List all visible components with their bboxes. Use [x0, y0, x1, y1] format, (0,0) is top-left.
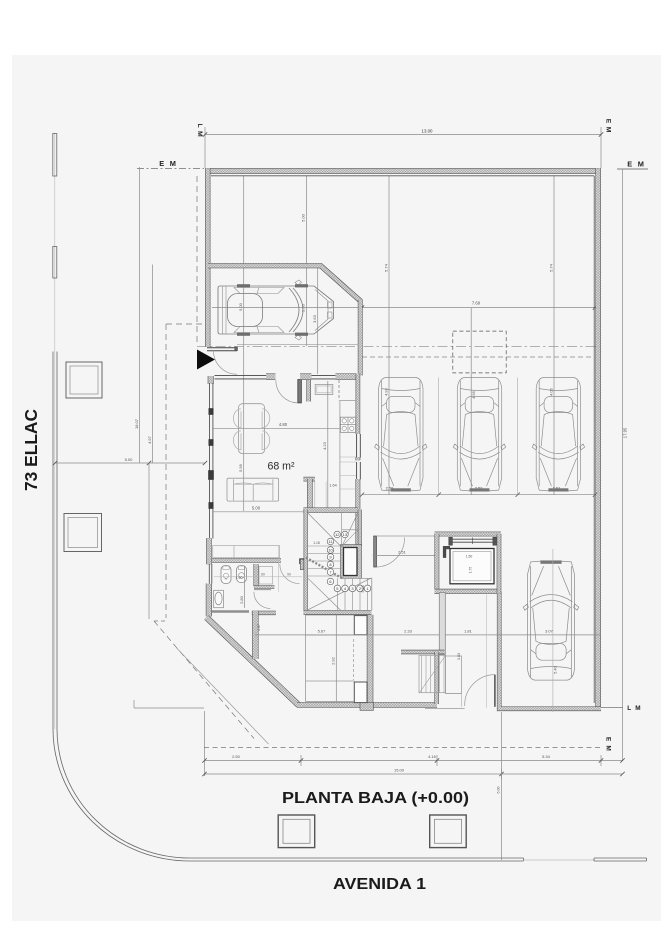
svg-text:E M: E M [605, 737, 612, 752]
svg-text:4.05: 4.05 [548, 387, 553, 396]
svg-text:60: 60 [261, 572, 265, 576]
svg-text:1.75: 1.75 [469, 567, 473, 573]
svg-text:2.51: 2.51 [398, 549, 407, 554]
svg-text:1.50: 1.50 [466, 555, 473, 559]
svg-text:17.95: 17.95 [623, 427, 628, 438]
svg-text:5.00: 5.00 [252, 506, 261, 511]
svg-text:3.63: 3.63 [312, 314, 317, 323]
svg-text:5.00: 5.00 [301, 213, 306, 222]
svg-text:4.97: 4.97 [147, 435, 152, 444]
svg-text:2.92: 2.92 [331, 656, 336, 665]
svg-text:L M: L M [196, 124, 203, 138]
svg-text:5.99: 5.99 [238, 463, 243, 472]
svg-text:5.83: 5.83 [361, 586, 365, 593]
svg-text:3.07: 3.07 [545, 629, 554, 634]
svg-text:2.33: 2.33 [404, 629, 413, 634]
svg-text:15.00: 15.00 [394, 768, 405, 773]
svg-text:13.00: 13.00 [422, 128, 434, 133]
svg-text:1.18: 1.18 [313, 541, 320, 545]
svg-text:2.80: 2.80 [239, 595, 244, 604]
svg-text:5.67: 5.67 [318, 629, 327, 634]
svg-text:E M: E M [627, 160, 646, 169]
svg-text:73 ELLAC: 73 ELLAC [21, 409, 41, 491]
svg-text:2.50: 2.50 [232, 754, 241, 759]
svg-text:1.07: 1.07 [257, 624, 261, 631]
svg-text:AVENIDA 1: AVENIDA 1 [333, 876, 426, 893]
svg-text:5.40: 5.40 [552, 665, 557, 674]
svg-text:1.60: 1.60 [236, 575, 243, 579]
svg-text:5.74: 5.74 [383, 263, 388, 272]
svg-text:5.34: 5.34 [542, 754, 551, 759]
svg-text:PLANTA BAJA (+0.00): PLANTA BAJA (+0.00) [282, 790, 469, 807]
svg-text:90: 90 [287, 572, 291, 576]
svg-text:E M: E M [159, 159, 178, 168]
svg-text:1.81: 1.81 [464, 629, 473, 634]
svg-text:4.23: 4.23 [322, 441, 327, 450]
svg-text:4.95: 4.95 [471, 390, 476, 399]
svg-text:10: 10 [328, 548, 333, 553]
svg-text:4.93: 4.93 [383, 387, 388, 396]
svg-text:18.07: 18.07 [134, 418, 139, 429]
svg-text:4.16: 4.16 [428, 754, 437, 759]
svg-text:68 m²: 68 m² [267, 460, 295, 472]
svg-text:7.69: 7.69 [472, 301, 481, 306]
svg-text:L M: L M [627, 705, 642, 712]
svg-text:3.83: 3.83 [457, 653, 461, 660]
svg-text:E M: E M [605, 119, 612, 133]
svg-text:5.74: 5.74 [548, 263, 553, 272]
svg-text:5.00: 5.00 [238, 302, 243, 311]
svg-text:12: 12 [335, 532, 340, 537]
svg-text:13: 13 [343, 532, 348, 537]
svg-text:4.80: 4.80 [279, 422, 288, 427]
svg-text:1.64: 1.64 [329, 484, 336, 488]
svg-text:5.00: 5.00 [125, 457, 134, 462]
svg-text:6.00: 6.00 [497, 787, 501, 794]
